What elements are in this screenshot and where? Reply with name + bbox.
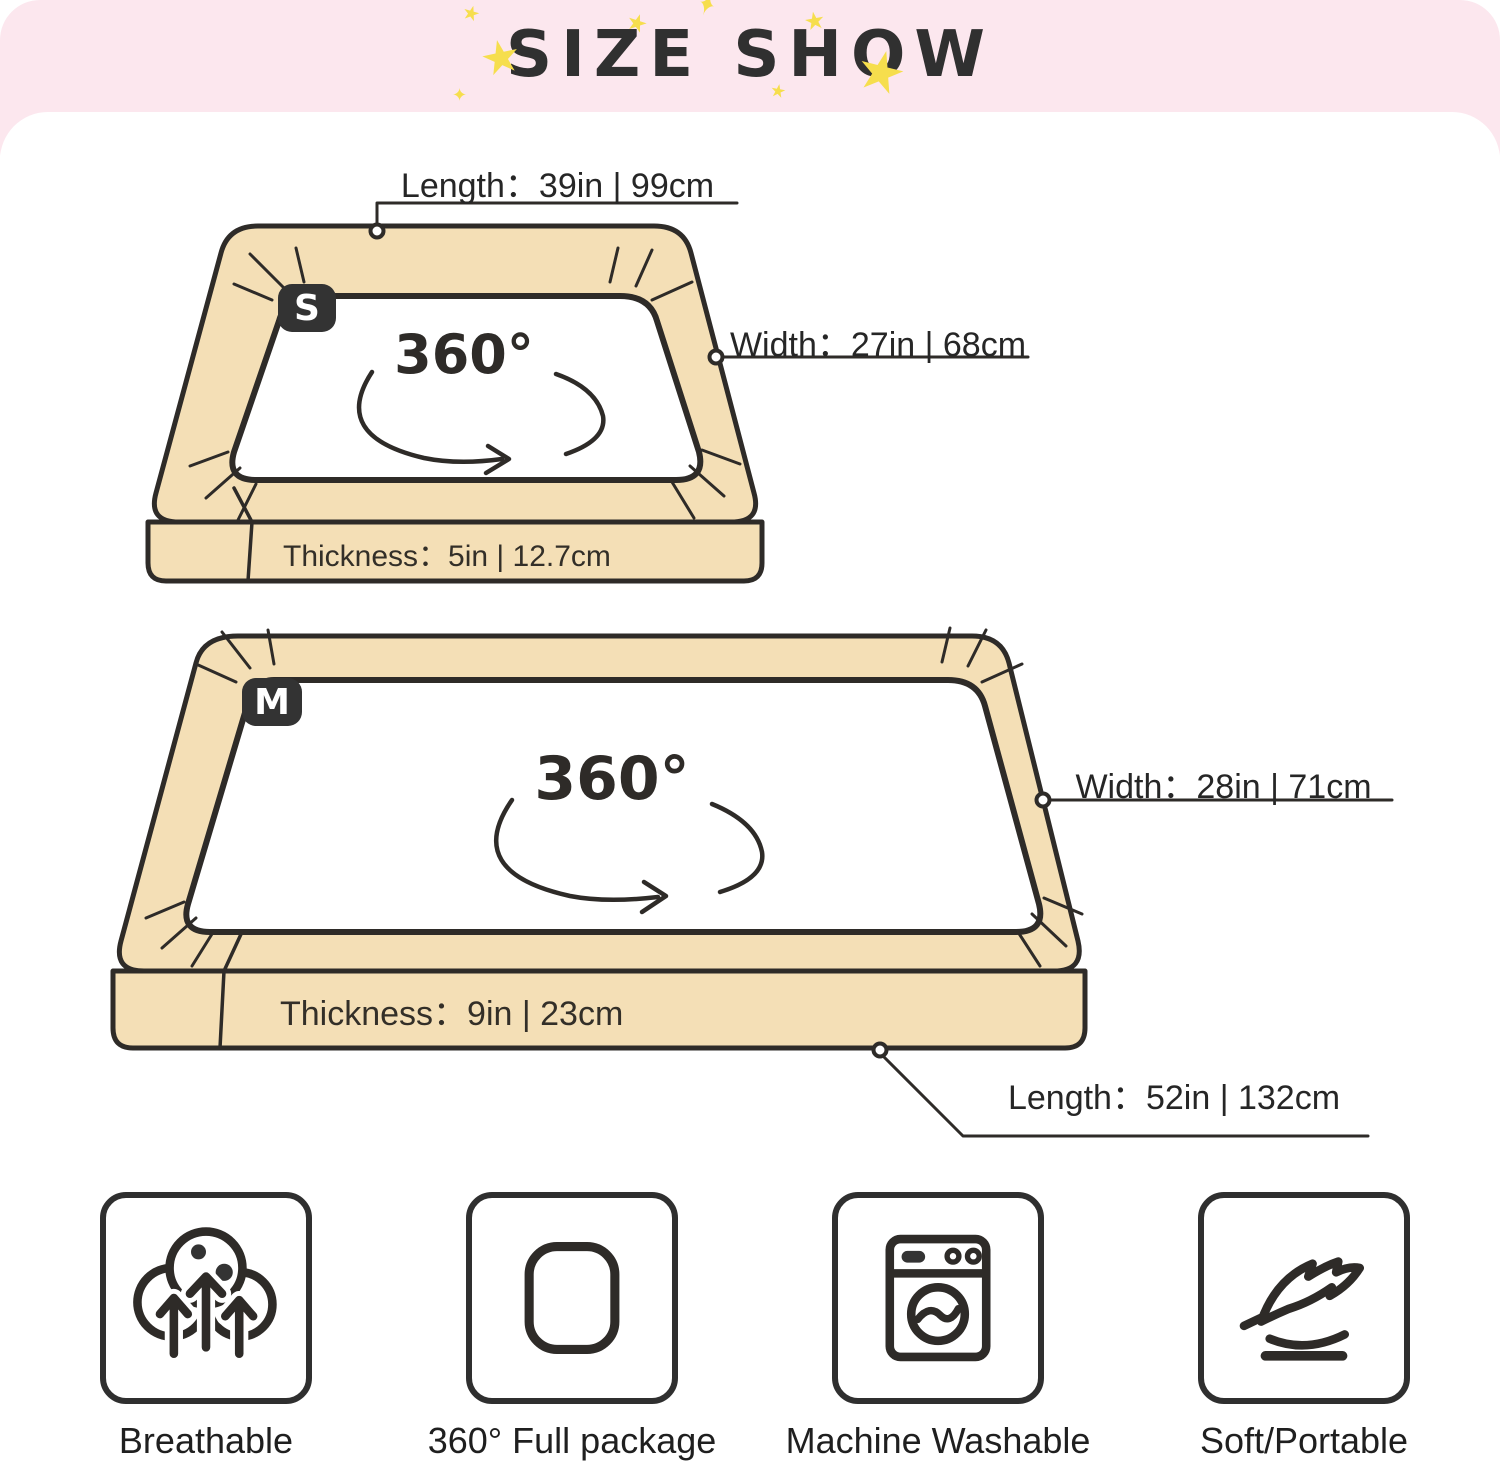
rotation-label-medium: 360°: [524, 744, 700, 814]
thickness-label-small: Thickness：5in | 12.7cm: [283, 531, 611, 575]
breathable-icon: [131, 1223, 281, 1373]
feature-label-soft-portable: Soft/Portable: [1198, 1420, 1410, 1462]
length-label-medium: Length：52in | 132cm: [980, 1070, 1368, 1119]
feature-label-full-package: 360° Full package: [466, 1420, 678, 1462]
sparkle-icon: [452, 86, 467, 104]
star-icon: [802, 8, 827, 35]
page-title: SIZE SHOW: [0, 18, 1500, 92]
feature-label-row: Breathable 360° Full package Machine Was…: [100, 1420, 1410, 1462]
feature-box-breathable: [100, 1192, 312, 1404]
machine-washable-icon: [863, 1223, 1013, 1373]
length-label-small: Length：39in | 99cm: [385, 158, 730, 207]
feature-box-full-package: [466, 1192, 678, 1404]
rotation-label-small: 360°: [382, 323, 546, 386]
full-package-icon: [497, 1223, 647, 1373]
thickness-label-medium: Thickness：9in | 23cm: [280, 986, 623, 1035]
feature-label-machine-washable: Machine Washable: [832, 1420, 1044, 1462]
width-label-medium: Width：28in | 71cm: [1055, 759, 1392, 808]
star-icon: [769, 81, 788, 102]
soft-portable-icon: [1229, 1223, 1379, 1373]
feature-box-machine-washable: [832, 1192, 1044, 1404]
feature-row: [100, 1192, 1410, 1404]
width-label-small: Width：27in | 68cm: [728, 317, 1028, 366]
feature-label-breathable: Breathable: [100, 1420, 312, 1462]
feature-box-soft-portable: [1198, 1192, 1410, 1404]
size-show-infographic: SIZE SHOW S: [0, 0, 1500, 1464]
